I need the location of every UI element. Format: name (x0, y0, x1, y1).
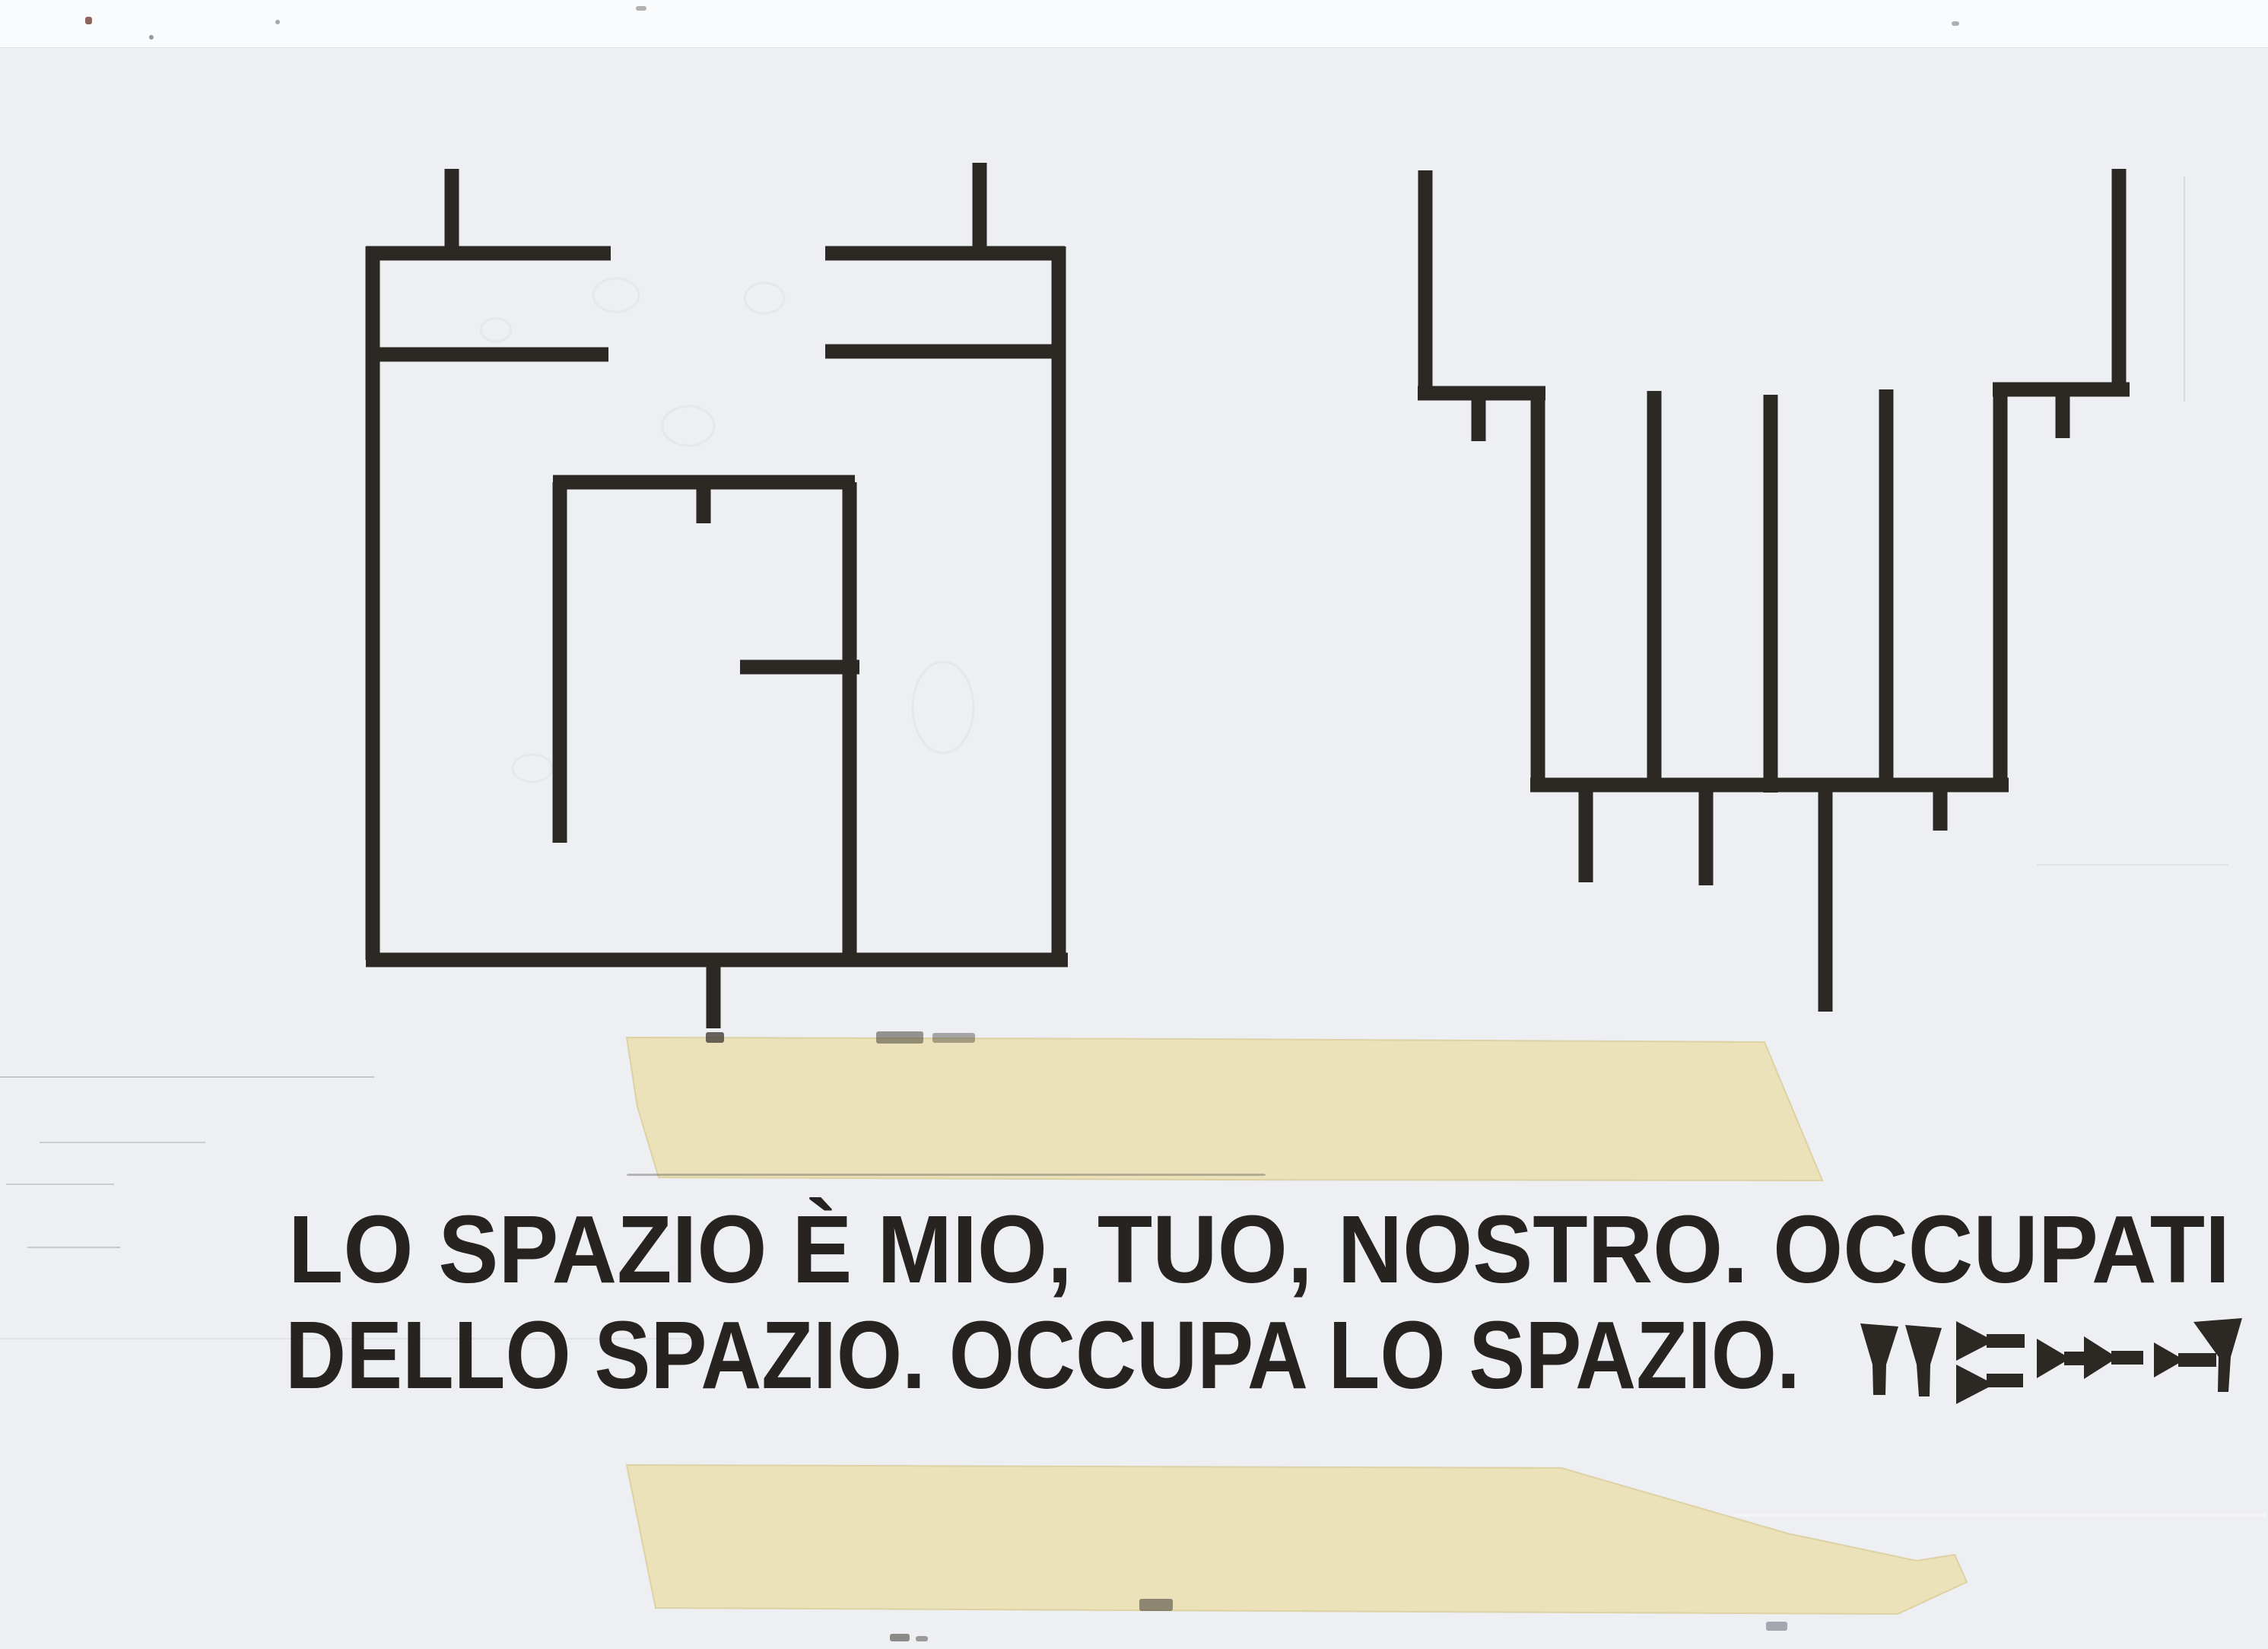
right-figure (1418, 169, 2130, 1012)
tape-strip-lower (627, 1465, 1967, 1614)
smudge-mark (1139, 1599, 1173, 1611)
smudge-mark (1766, 1622, 1787, 1631)
smudge-mark (636, 6, 646, 11)
ghost-trace (745, 283, 784, 313)
left-figure (366, 163, 1068, 1028)
statement-line-2: DELLO SPAZIO. OCCUPA LO SPAZIO. (285, 1307, 1800, 1403)
ghost-trace (593, 278, 639, 312)
smudge-mark (149, 35, 154, 40)
stacked-wedge-bottom-tail (1987, 1374, 2023, 1387)
smudge-mark (932, 1033, 975, 1043)
horizontal-wedge-2-tail (2111, 1351, 2143, 1365)
statement-line-1: LO SPAZIO È MIO, TUO, NOSTRO. OCCUPATI (288, 1202, 2230, 1298)
ghost-trace (481, 319, 511, 342)
smudge-mark (1952, 21, 1959, 26)
horizontal-wedge-3-tail (2178, 1353, 2216, 1367)
ghost-trace (513, 755, 552, 782)
smudge-mark (85, 17, 92, 24)
vertical-wedge-2 (1905, 1325, 1942, 1396)
smudge-mark (1734, 1514, 2266, 1517)
horizontal-wedge-1-tail (2064, 1352, 2085, 1365)
smudge-mark (876, 1031, 923, 1044)
vertical-wedge-1 (1860, 1323, 1898, 1395)
smudge-mark (890, 1634, 910, 1641)
ghost-trace (662, 406, 714, 446)
tape-strip-upper (627, 1037, 1822, 1180)
smudge-mark (275, 20, 280, 24)
smudge-mark (627, 1174, 1266, 1176)
stacked-wedge-top-tail (1987, 1334, 2025, 1348)
scanned-artwork-page: LO SPAZIO È MIO, TUO, NOSTRO. OCCUPATI D… (0, 0, 2268, 1649)
cuneiform-glyphs (1860, 1318, 2242, 1404)
smudge-mark (916, 1636, 928, 1641)
smudge-mark (706, 1032, 724, 1043)
ghost-trace (913, 662, 974, 753)
